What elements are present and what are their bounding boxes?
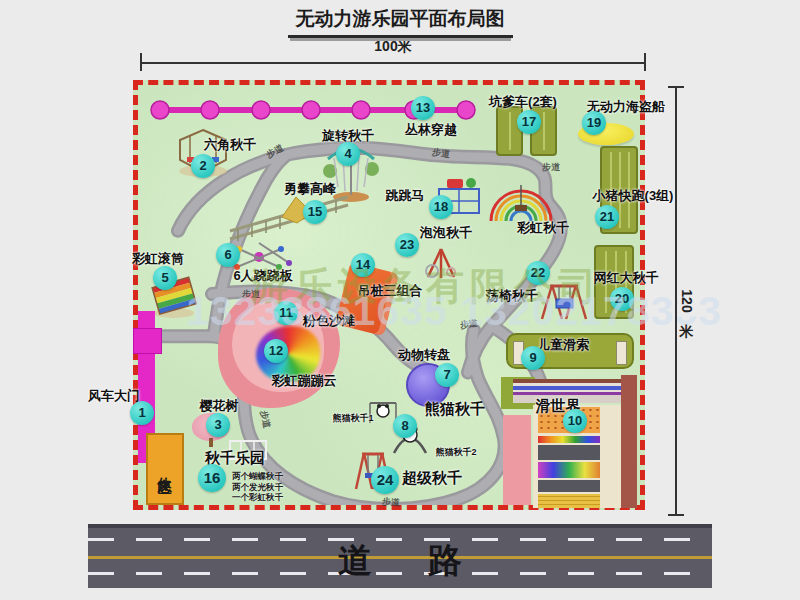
road-label: 道路 xyxy=(338,538,518,584)
poi-hexagon-swing-label: 六角秋千 xyxy=(204,136,256,154)
dimension-right-label: 120米 xyxy=(678,285,696,316)
slide-world-icon xyxy=(501,375,637,508)
marker-5: 5 xyxy=(153,266,177,290)
swing-park-note-3: 一个彩虹秋千 xyxy=(232,492,283,503)
poi-kids-zipline-label: 儿童滑索 xyxy=(537,336,589,354)
poi-super-swing-label: 超级秋千 xyxy=(402,469,462,488)
poi-bubble-swing-label: 泡泡秋千 xyxy=(420,224,472,242)
poi-animal-turntable-label: 动物转盘 xyxy=(398,346,450,364)
marker-8: 8 xyxy=(393,414,417,438)
dimension-top: 100米 xyxy=(140,53,646,71)
marker-17: 17 xyxy=(517,110,541,134)
dimension-top-line xyxy=(142,62,644,64)
rest-area: 休息区 xyxy=(146,433,184,505)
park-map: 休息区 步道 步道 步道 步道 步道 步道 步道 游乐设备有限公司 132338… xyxy=(133,80,645,510)
climbing-structure-icon xyxy=(222,189,356,249)
poi-jumping-horse-label: 跳跳马 xyxy=(386,187,425,205)
panda-swing-1-label: 熊猫秋千1 xyxy=(332,412,373,425)
playground-plan-page: 无动力游乐园平面布局图 100米 120米 xyxy=(0,0,800,600)
poi-windmill-gate-label: 风车大门 xyxy=(88,387,140,405)
poi-big-swing-label: 网红大秋千 xyxy=(594,269,659,287)
marker-3: 3 xyxy=(206,413,230,437)
watermark-phone: 13233861635 13202178333 xyxy=(186,288,722,335)
poi-rainbow-cloud-label: 彩虹蹦蹦云 xyxy=(272,372,337,390)
marker-1: 1 xyxy=(130,401,154,425)
swing-park-note-2: 两个发光秋千 xyxy=(232,482,283,493)
marker-19: 19 xyxy=(582,111,606,135)
trail-label-2: 步道 xyxy=(431,146,451,161)
marker-18: 18 xyxy=(429,195,453,219)
poi-pit-car-label: 坑爹车(2套) xyxy=(489,93,557,111)
marker-6: 6 xyxy=(216,243,240,267)
marker-13: 13 xyxy=(411,96,435,120)
trail-label-3: 步道 xyxy=(542,161,560,174)
marker-10: 10 xyxy=(563,409,587,433)
dimension-right: 120米 xyxy=(668,86,684,516)
marker-4: 4 xyxy=(336,142,360,166)
poi-jungle-crossing-label: 丛林穿越 xyxy=(405,121,457,139)
page-title: 无动力游乐园平面布局图 xyxy=(0,6,800,38)
zipline-post-right xyxy=(616,341,627,365)
poi-rainbow-roller-label: 彩虹滚筒 xyxy=(132,250,184,268)
poi-piggy-run-label: 小猪快跑(3组) xyxy=(593,187,674,205)
windmill-gate-top-icon xyxy=(133,328,162,354)
dimension-right-line xyxy=(675,88,677,514)
marker-2: 2 xyxy=(191,154,215,178)
swing-park-note-1: 两个蝴蝶秋千 xyxy=(232,471,283,482)
marker-12: 12 xyxy=(264,339,288,363)
road: 道路 xyxy=(88,524,712,588)
marker-15: 15 xyxy=(303,200,327,224)
poi-climbing-label: 勇攀高峰 xyxy=(284,180,336,198)
page-title-text: 无动力游乐园平面布局图 xyxy=(288,6,513,38)
swing-park-notes: 两个蝴蝶秋千 两个发光秋千 一个彩虹秋千 xyxy=(232,471,283,503)
poi-panda-swing-label: 熊猫秋千 xyxy=(425,400,485,419)
marker-24: 24 xyxy=(371,466,399,494)
marker-23: 23 xyxy=(395,233,419,257)
marker-21: 21 xyxy=(595,205,619,229)
marker-16: 16 xyxy=(198,464,226,492)
dimension-top-label: 100米 xyxy=(368,38,417,56)
marker-7: 7 xyxy=(435,363,459,387)
marker-9: 9 xyxy=(521,346,545,370)
trail-label-7: 步道 xyxy=(382,495,401,509)
panda-swing-2-label: 熊猫秋千2 xyxy=(435,446,476,459)
rest-area-label: 休息区 xyxy=(156,466,174,472)
rainbow-swing-label: 彩虹秋千 xyxy=(517,219,569,237)
